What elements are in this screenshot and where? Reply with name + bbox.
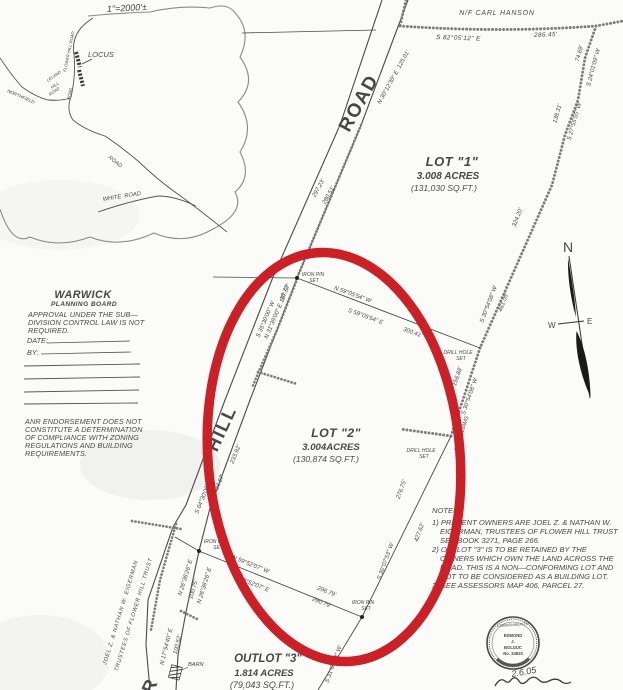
svg-text:(130,874 SQ.FT.): (130,874 SQ.FT.): [293, 454, 359, 464]
svg-text:N/F CARL HANSON: N/F CARL HANSON: [459, 10, 535, 17]
svg-text:3) SEE ASSESSORS MAP 406, PARC: 3) SEE ASSESSORS MAP 406, PARCEL 27.: [432, 581, 584, 590]
svg-text:OUTLOT "3": OUTLOT "3": [234, 653, 302, 665]
svg-text:REQUIREMENTS.: REQUIREMENTS.: [25, 449, 87, 458]
svg-text:BY:: BY:: [27, 348, 39, 357]
svg-text:1"=2000'±: 1"=2000'±: [107, 2, 148, 14]
svg-text:(131,030 SQ.FT.): (131,030 SQ.FT.): [411, 183, 477, 193]
svg-text:S 82°05'12" E: S 82°05'12" E: [436, 33, 481, 43]
svg-text:LOCUS: LOCUS: [88, 50, 114, 59]
svg-text:No. 34820: No. 34820: [503, 651, 523, 656]
svg-text:PLANNING BOARD: PLANNING BOARD: [51, 301, 117, 308]
svg-text:SET: SET: [361, 606, 372, 612]
svg-text:3.004ACRES: 3.004ACRES: [302, 442, 360, 453]
svg-text:EDMOND: EDMOND: [504, 633, 523, 638]
svg-text:3.008 ACRES: 3.008 ACRES: [417, 171, 480, 182]
svg-text:WARWICK: WARWICK: [54, 289, 112, 301]
svg-text:OWNERS WHICH OWN THE LAND ACRO: OWNERS WHICH OWN THE LAND ACROSS THE: [440, 554, 614, 563]
svg-text:BOLDUC: BOLDUC: [504, 645, 522, 650]
svg-text:LOT "1": LOT "1": [426, 154, 479, 169]
svg-text:DATE:: DATE:: [27, 336, 48, 345]
svg-text:N: N: [563, 239, 573, 255]
svg-text:W: W: [548, 321, 556, 330]
svg-text:J.: J.: [511, 639, 515, 644]
svg-text:286.45': 286.45': [533, 31, 558, 39]
svg-text:SET: SET: [456, 356, 467, 362]
svg-text:LOT "2": LOT "2": [311, 426, 361, 440]
svg-text:SET: SET: [309, 278, 320, 284]
svg-text:EIGERMAN, TRUSTEES OF FLOWER H: EIGERMAN, TRUSTEES OF FLOWER HILL TRUST: [440, 527, 619, 536]
svg-text:SET: SET: [419, 454, 430, 460]
svg-text:1.814 ACRES: 1.814 ACRES: [234, 668, 294, 679]
svg-text:E: E: [587, 317, 592, 326]
svg-text:ROAD. THIS IS A NON—CONFORMING: ROAD. THIS IS A NON—CONFORMING LOT AND: [440, 563, 614, 572]
svg-text:BARN: BARN: [188, 662, 205, 668]
svg-text:REQUIRED.: REQUIRED.: [28, 326, 69, 335]
svg-text:NOT TO BE CONSIDERED AS A BUIL: NOT TO BE CONSIDERED AS A BUILDING LOT.: [440, 572, 608, 581]
